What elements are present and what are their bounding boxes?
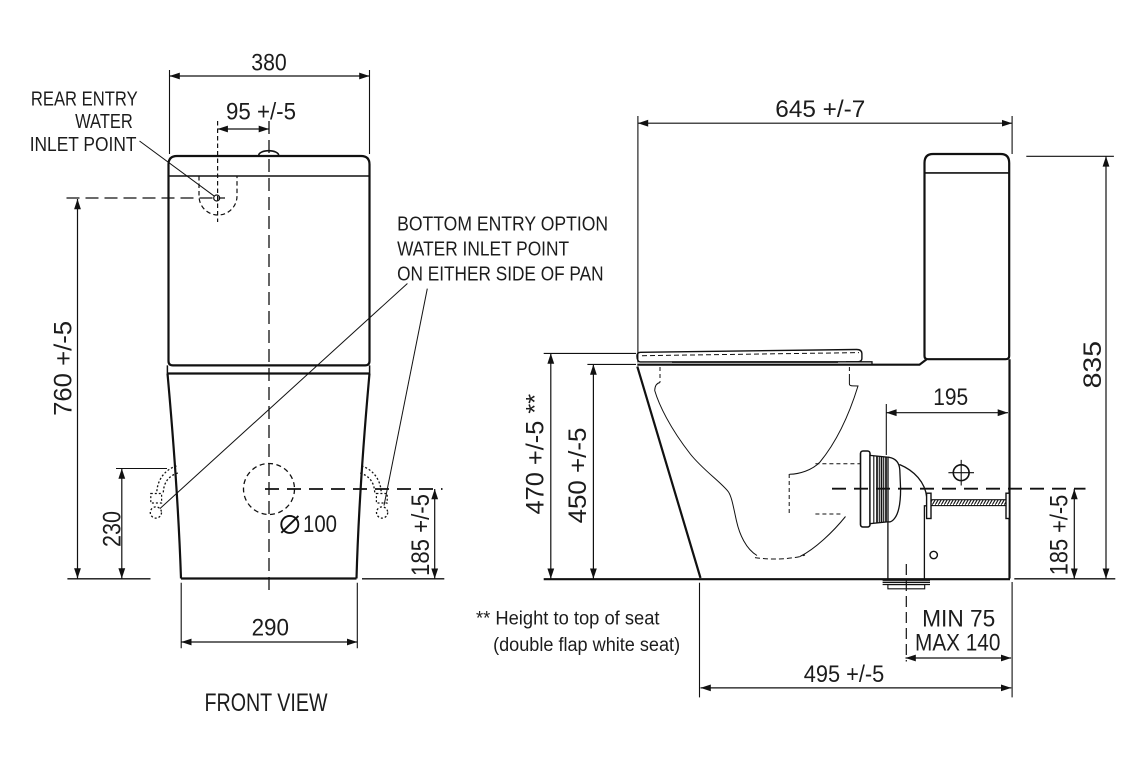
svg-text:380: 380	[251, 50, 287, 77]
svg-text:ON EITHER SIDE OF PAN: ON EITHER SIDE OF PAN	[397, 263, 603, 286]
svg-text:470 +/-5 **: 470 +/-5 **	[522, 394, 550, 515]
svg-text:450 +/-5: 450 +/-5	[564, 428, 592, 524]
svg-text:WATER INLET POINT: WATER INLET POINT	[397, 237, 569, 260]
svg-text:INLET POINT: INLET POINT	[30, 133, 137, 156]
svg-text:100: 100	[303, 511, 337, 538]
svg-text:(double flap white seat): (double flap white seat)	[493, 635, 680, 656]
svg-text:185 +/-5: 185 +/-5	[1046, 495, 1074, 576]
svg-text:760 +/-5: 760 +/-5	[50, 321, 78, 416]
svg-text:** Height to top of seat: ** Height to top of seat	[476, 609, 660, 630]
svg-text:95 +/-5: 95 +/-5	[226, 99, 296, 126]
svg-text:835: 835	[1079, 341, 1107, 388]
svg-text:MIN 75: MIN 75	[922, 606, 995, 633]
svg-text:495 +/-5: 495 +/-5	[804, 661, 885, 688]
svg-text:290: 290	[252, 614, 289, 641]
svg-text:645 +/-7: 645 +/-7	[775, 96, 865, 123]
svg-text:WATER: WATER	[75, 110, 133, 133]
svg-text:230: 230	[99, 511, 127, 547]
svg-text:195: 195	[933, 384, 968, 411]
svg-text:BOTTOM ENTRY OPTION: BOTTOM ENTRY OPTION	[397, 212, 608, 235]
svg-text:MAX 140: MAX 140	[915, 630, 1000, 657]
svg-text:FRONT VIEW: FRONT VIEW	[205, 689, 328, 717]
svg-text:REAR ENTRY: REAR ENTRY	[31, 88, 138, 111]
svg-text:185 +/-5: 185 +/-5	[407, 494, 435, 576]
